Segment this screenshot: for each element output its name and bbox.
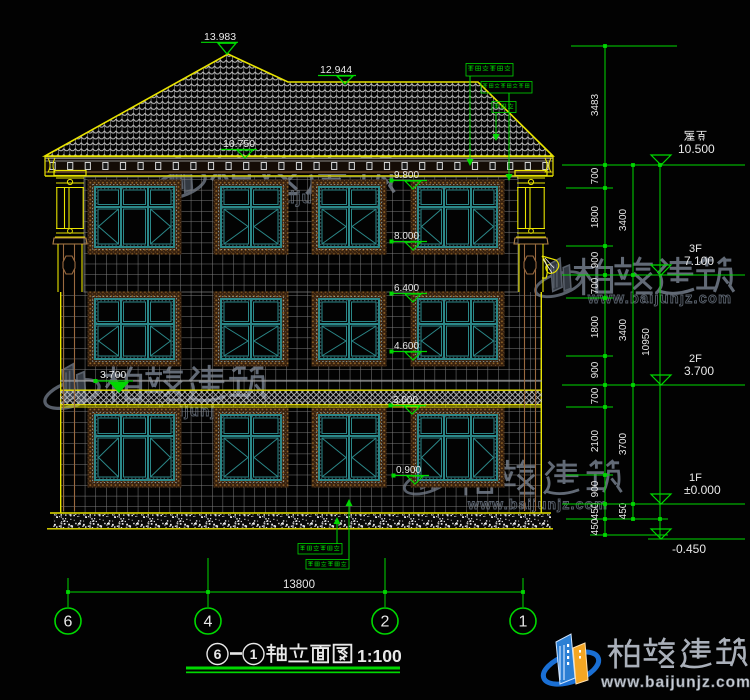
svg-text:450: 450 [590,518,601,535]
svg-text:700: 700 [590,167,601,184]
svg-text:0.900: 0.900 [396,465,421,476]
svg-text:6: 6 [214,646,222,662]
svg-text:1800: 1800 [590,205,601,228]
svg-text:3.700: 3.700 [684,364,714,378]
svg-text:3.700: 3.700 [100,369,126,381]
svg-text:1: 1 [519,614,528,631]
svg-text:-0.450: -0.450 [672,542,706,556]
svg-text:6: 6 [64,614,73,631]
svg-text:www.baijunjz.com: www.baijunjz.com [600,674,750,691]
svg-text:450: 450 [590,502,601,519]
svg-text:3700: 3700 [618,432,629,455]
svg-text:1800: 1800 [590,315,601,338]
svg-text:9.800: 9.800 [394,170,419,181]
svg-text:2: 2 [381,614,390,631]
svg-text:±0.000: ±0.000 [684,483,721,497]
svg-text:7.100: 7.100 [684,254,714,268]
svg-text:700: 700 [590,387,601,404]
svg-text:3483: 3483 [590,93,601,116]
svg-text:900: 900 [590,251,601,268]
svg-text:12.944: 12.944 [320,64,352,76]
svg-text:10.500: 10.500 [678,142,715,156]
svg-text:13.983: 13.983 [204,31,236,43]
svg-text:4.600: 4.600 [394,341,419,352]
svg-text:450: 450 [618,502,629,519]
svg-text:3.000: 3.000 [393,395,418,406]
svg-text:4: 4 [204,614,213,631]
svg-text:10950: 10950 [641,328,652,356]
svg-text:700: 700 [590,277,601,294]
svg-text:13800: 13800 [283,579,315,591]
svg-text:2100: 2100 [590,429,601,452]
svg-text:900: 900 [590,480,601,497]
svg-text:900: 900 [590,361,601,378]
svg-text:3400: 3400 [618,208,629,231]
svg-text:6.400: 6.400 [394,283,419,294]
svg-text:10.750: 10.750 [223,138,255,150]
svg-text:3400: 3400 [618,318,629,341]
svg-text:8.000: 8.000 [394,231,419,242]
svg-text:1:100: 1:100 [357,646,402,666]
svg-text:1: 1 [250,646,258,662]
